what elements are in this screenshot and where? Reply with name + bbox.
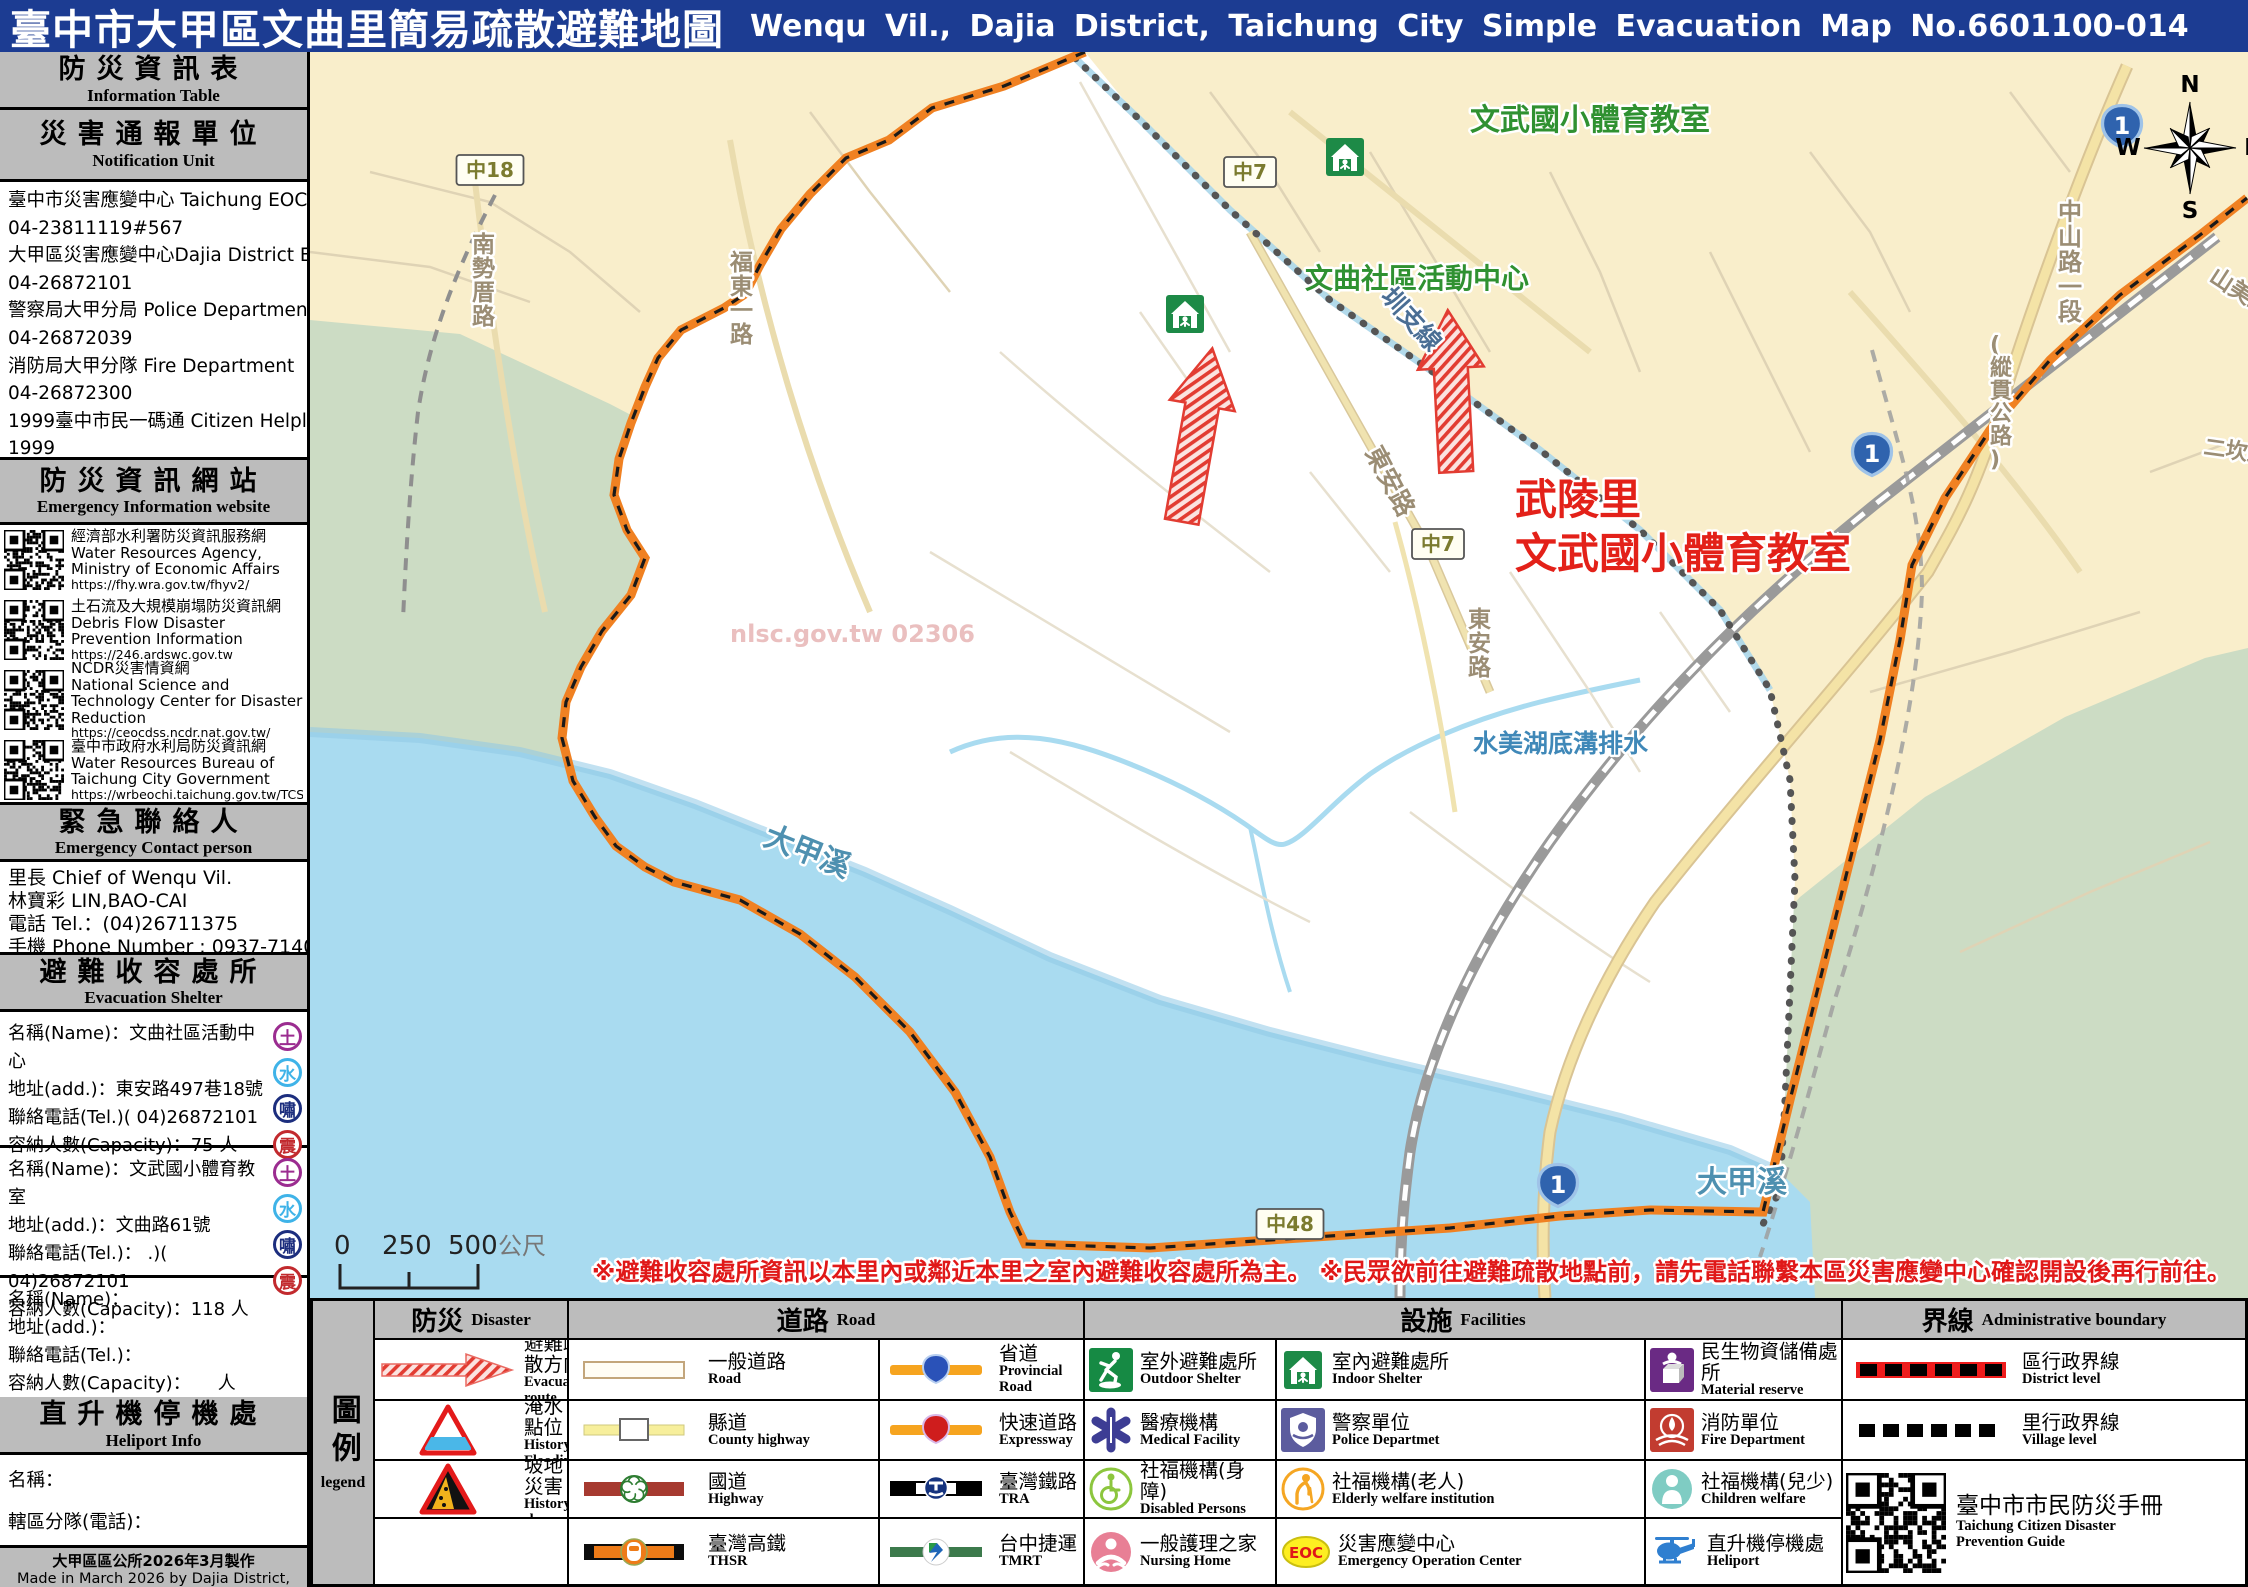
heliport-header: 直升機停機處 Heliport Info [0,1397,307,1455]
website-qr-code [4,670,64,730]
shelter-card: 名稱(Name)：文武國小體育教室地址(add.)：文曲路61號聯絡電話(Tel… [0,1148,307,1278]
national-highway-icon [572,1473,702,1505]
heliport-icon [1649,1529,1701,1575]
website-name-zh: 土石流及大規模崩塌防災資訊網 [71,598,303,615]
tra-icon [883,1472,993,1506]
contact-line: 手機 Phone Number : 0937-714009 [8,936,299,955]
village-boundary-icon [1846,1416,2016,1444]
hazard-badge-嘯: 嘯 [273,1230,302,1259]
notification-list: 臺中市災害應變中心 Taichung EOC04-23811119#567大甲區… [0,182,307,460]
legend-medical-facility: 醫療機構Medical Facility [1083,1399,1275,1459]
svg-text:1: 1 [1864,440,1881,468]
nursing-home-icon [1088,1529,1134,1575]
map-canvas: 中18中7中7中48111文武國小體育教室文曲社區活動中心武陵里文武國小體育教室… [310,52,2248,1298]
svg-text:中18: 中18 [466,158,514,182]
contact-title-zh: 緊急聯絡人 [0,807,307,839]
contact-header: 緊急聯絡人 Emergency Contact person [0,805,307,862]
info-table-title-en: Information Table [0,87,307,105]
notification-unit-header: 災害通報單位 Notification Unit [0,110,307,182]
contact-line: 電話 Tel.：(04)26711375 [8,913,299,936]
hazard-badges: 土水嘯震 [273,1158,302,1295]
legend-disabled-persons: 社福機構(身障)Disabled Persons [1083,1459,1275,1517]
svg-text:中7: 中7 [1233,160,1267,184]
svg-text:EOC: EOC [1289,1544,1323,1562]
road-marker-中7: 中7 [1412,529,1464,559]
svg-text:中7: 中7 [1421,532,1455,556]
notification-title-en: Notification Unit [0,152,307,170]
title-bar: 臺中市大甲區文曲里簡易疏散避難地圖 Wenqu Vil., Dajia Dist… [0,0,2248,52]
shelter-list: 名稱(Name)：文曲社區活動中心地址(add.)：東安路497巷18號聯絡電話… [0,1012,307,1397]
material-reserve-icon [1649,1347,1695,1393]
provincial-road-icon [883,1351,993,1389]
contact-title-en: Emergency Contact person [0,839,307,857]
map-label: 中山路一段 [2058,198,2083,326]
shelter-line: 名稱(Name)：文武國小體育教室 [8,1156,263,1212]
legend-flood-point: 歷史淹水點位History Flooding Point [373,1399,567,1459]
elderly-welfare-icon [1280,1466,1326,1512]
notification-line: 04-23811119#567 [8,215,299,243]
watermark: nlsc.gov.tw 02306 [730,620,975,648]
map-label: 文武國小體育教室 [1515,529,1851,578]
notification-line: 04-26872101 [8,270,299,298]
hazard-badge-水: 水 [273,1194,302,1223]
map-label: 文武國小體育教室 [1470,103,1710,138]
map-label: 福東一路 [729,250,754,348]
svg-text:250: 250 [382,1231,432,1261]
legend-eoc: EOC 災害應變中心Emergency Operation Center [1275,1517,1644,1584]
legend-disaster-empty [373,1517,567,1584]
flood-point-icon [378,1403,518,1457]
guide-qr-code [1846,1473,1946,1573]
website-item: 經濟部水利署防災資訊服務網Water Resources Agency, Min… [4,525,303,595]
legend-elderly-welfare: 社福機構(老人)Elderly welfare institution [1275,1459,1644,1517]
legend-county-highway: 縣道County highway [567,1399,878,1459]
website-texts: 土石流及大規模崩塌防災資訊網Debris Flow Disaster Preve… [71,598,303,661]
road-marker-中7: 中7 [1224,157,1276,187]
compass-n: N [2180,72,2199,98]
compass-e: E [2244,135,2248,161]
website-name-en: Debris Flow Disaster Prevention Informat… [71,615,303,648]
hazard-badge-土: 土 [273,1022,302,1051]
legend-police: 警察單位Police Departmet [1275,1399,1644,1459]
legend-children-welfare: 社福機構(兒少)Children welfare [1644,1459,1841,1517]
sidebar: 防災資訊表 Information Table 災害通報單位 Notificat… [0,52,310,1587]
legend-tmrt: 台中捷運TMRT [878,1517,1083,1584]
indoor-shelter-icon [1280,1347,1326,1393]
legend-heliport: 直升機停機處Heliport [1644,1517,1841,1584]
shelter-card: 名稱(Name)：文曲社區活動中心地址(add.)：東安路497巷18號聯絡電話… [0,1012,307,1148]
notification-line: 1999 [8,435,299,460]
legend-evacuation-route: 避難疏散方向Evacuation route [373,1338,567,1399]
district-boundary-icon [1846,1356,2016,1384]
heliport-line: 名稱： [8,1460,299,1502]
children-welfare-icon [1649,1466,1695,1512]
hazard-badge-水: 水 [273,1058,302,1087]
legend-indoor-shelter: 室內避難處所Indoor Shelter [1275,1338,1644,1399]
fire-department-icon [1649,1407,1695,1453]
page-title: 臺中市大甲區文曲里簡易疏散避難地圖 [10,0,724,56]
tmrt-icon [883,1533,993,1571]
legend-corner-en: legend [321,1474,365,1492]
svg-text:1: 1 [1550,1171,1567,1199]
website-texts: 經濟部水利署防災資訊服務網Water Resources Agency, Min… [71,528,303,591]
made-by-zh: 大甲區區公所2026年3月製作 [0,1550,307,1571]
legend-district-boundary: 區行政界線District level [1841,1338,2245,1399]
website-list: 經濟部水利署防災資訊服務網Water Resources Agency, Min… [0,525,307,805]
shelter-line: 名稱(Name)：文曲社區活動中心 [8,1020,263,1076]
road-marker-中18: 中18 [457,155,524,185]
legend-corner-zh: 圖例 [324,1394,362,1470]
notification-line: 1999臺中市民一碼通 Citizen Helpline [8,408,299,436]
notification-title-zh: 災害通報單位 [0,119,307,151]
shelter-title-zh: 避難收容處所 [0,957,307,989]
info-table-header: 防災資訊表 Information Table [0,52,307,110]
website-url: https://fhy.wra.gov.tw/fhyv2/ [71,578,303,592]
contact-list: 里長 Chief of Wenqu Vil.林寶彩 LIN,BAO-CAI電話 … [0,862,307,955]
website-name-en: National Science and Technology Center f… [71,677,303,727]
map-area: 中18中7中7中48111文武國小體育教室文曲社區活動中心武陵里文武國小體育教室… [310,52,2248,1298]
map-label: 南勢厝路 [472,232,496,330]
legend-header-facilities: 設施Facilities [1083,1301,1841,1338]
map-label: 水美湖底溝排水 [1473,729,1649,758]
made-by-en: Made in March 2026 by Dajia District, Ta… [0,1571,307,1587]
website-name-en: Water Resources Bureau of Taichung City … [71,755,303,788]
page-title-en: Wenqu Vil., Dajia District, Taichung Cit… [750,9,2189,44]
thsr-icon [572,1534,702,1570]
legend-corner: 圖例 legend [313,1301,373,1584]
legend-provincial-road: 省道Provincial Road [878,1338,1083,1399]
slope-point-icon [378,1462,518,1516]
website-qr-code [4,600,64,660]
shelter-line: 地址(add.)：東安路497巷18號 [8,1076,263,1104]
shelter-line: 聯絡電話(Tel.)： [8,1342,263,1370]
evacuation-route-icon [378,1349,518,1391]
website-item: NCDR災害情資網National Science and Technology… [4,665,303,735]
svg-text:500: 500 [448,1231,498,1261]
legend-nursing-home: 一般護理之家Nursing Home [1083,1517,1275,1584]
heliport-title-zh: 直升機停機處 [0,1399,307,1431]
expressway-icon [883,1411,993,1449]
shelter-card: 名稱(Name)：地址(add.)：聯絡電話(Tel.)：容納人數(Capaci… [0,1278,307,1397]
map-label: 東安路 [1468,607,1492,681]
hazard-badge-土: 土 [273,1158,302,1187]
notification-line: 臺中市災害應變中心 Taichung EOC [8,187,299,215]
eoc-icon: EOC [1280,1529,1332,1575]
police-icon [1280,1407,1326,1453]
legend-village-boundary: 里行政界線Village level [1841,1399,2245,1459]
heliport-line: 轄區分隊(電話)： [8,1502,299,1544]
website-title-en: Emergency Information website [0,498,307,516]
warning-note: ※避難收容處所資訊以本里內或鄰近本里之室內避難收容處所為主。 ※民眾欲前往避難疏… [592,1258,2231,1286]
shelter-header: 避難收容處所 Evacuation Shelter [0,955,307,1012]
legend-table: 圖例 legend 防災Disaster 道路Road 設施Facilities… [310,1298,2248,1587]
legend-material-reserve: 民生物資儲備處所Material reserve [1644,1338,1841,1399]
shelter-line: 聯絡電話(Tel.)( 04)26872101 [8,1104,263,1132]
website-name-en: Water Resources Agency, Ministry of Econ… [71,545,303,578]
contact-line: 林寶彩 LIN,BAO-CAI [8,890,299,913]
road-marker-中48: 中48 [1257,1209,1324,1239]
legend-header-boundary: 界線Administrative boundary [1841,1301,2245,1338]
svg-text:0: 0 [334,1231,351,1261]
svg-text:公尺: 公尺 [498,1232,546,1260]
legend-thsr: 臺灣高鐵THSR [567,1517,878,1584]
compass-w: W [2115,135,2140,161]
legend-expressway: 快速道路Expressway [878,1399,1083,1459]
legend-tra: 臺灣鐵路TRA [878,1459,1083,1517]
legend-qr-guide: 臺中市市民防災手冊 Taichung Citizen Disaster Prev… [1841,1459,2245,1584]
guide-caption-zh: 臺中市市民防災手冊 [1956,1494,2163,1519]
sidebar-footer: 大甲區區公所2026年3月製作 Made in March 2026 by Da… [0,1548,307,1587]
outdoor-shelter-icon [1088,1347,1134,1393]
svg-text:中48: 中48 [1266,1212,1314,1236]
website-item: 土石流及大規模崩塌防災資訊網Debris Flow Disaster Preve… [4,595,303,665]
website-name-zh: 臺中市政府水利局防災資訊網 [71,738,303,755]
notification-line: 04-26872039 [8,325,299,353]
website-title-zh: 防災資訊網站 [0,466,307,498]
notification-line: 04-26872300 [8,380,299,408]
heliport-info: 名稱：轄區分隊(電話)： [0,1455,307,1548]
contact-line: 里長 Chief of Wenqu Vil. [8,867,299,890]
hazard-badges: 土水嘯震 [273,1022,302,1159]
indoor-shelter-icon [1166,295,1204,333]
map-label: 大甲溪 [1697,1165,1788,1200]
shelter-line: 地址(add.)： [8,1314,263,1342]
website-name-zh: 經濟部水利署防災資訊服務網 [71,528,303,545]
website-url: https://wrbeochi.taichung.gov.tw/TCSAFEp… [71,788,303,802]
map-label: 武陵里 [1515,475,1641,524]
website-item: 臺中市政府水利局防災資訊網Water Resources Bureau of T… [4,735,303,805]
legend-outdoor-shelter: 室外避難處所Outdoor Shelter [1083,1338,1275,1399]
shelter-line: 容納人數(Capacity)： 人 [8,1370,263,1398]
legend-header-disaster: 防災Disaster [373,1301,567,1338]
disabled-persons-icon [1088,1466,1134,1512]
indoor-shelter-icon [1326,138,1364,176]
website-qr-code [4,530,64,590]
evacuation-map-screen: 臺中市大甲區文曲里簡易疏散避難地圖 Wenqu Vil., Dajia Dist… [0,0,2248,1587]
legend-slope-point: 歷史坡地災害History slope point [373,1459,567,1517]
website-header: 防災資訊網站 Emergency Information website [0,460,307,525]
medical-facility-icon [1088,1407,1134,1453]
legend-header-road: 道路Road [567,1301,1083,1338]
map-label: 文曲社區活動中心 [1305,262,1529,295]
shelter-title-en: Evacuation Shelter [0,989,307,1007]
shelter-line: 名稱(Name)： [8,1286,263,1314]
legend-road-plain: 一般道路Road [567,1338,878,1399]
heliport-title-en: Heliport Info [0,1432,307,1450]
notification-line: 大甲區災害應變中心Dajia District EOC [8,242,299,270]
hazard-badge-嘯: 嘯 [273,1094,302,1123]
website-name-zh: NCDR災害情資網 [71,660,303,677]
county-highway-icon [572,1416,702,1444]
website-texts: 臺中市政府水利局防災資訊網Water Resources Bureau of T… [71,738,303,801]
shelter-line: 地址(add.)：文曲路61號 [8,1212,263,1240]
website-texts: NCDR災害情資網National Science and Technology… [71,660,303,740]
notification-line: 消防局大甲分隊 Fire Department [8,353,299,381]
compass-s: S [2182,198,2199,224]
legend-fire-department: 消防單位Fire Department [1644,1399,1841,1459]
website-qr-code [4,740,64,800]
road-plain-icon [572,1357,702,1383]
legend-national-highway: 國道Highway [567,1459,878,1517]
notification-line: 警察局大甲分局 Police Department [8,297,299,325]
info-table-title-zh: 防災資訊表 [0,54,307,86]
